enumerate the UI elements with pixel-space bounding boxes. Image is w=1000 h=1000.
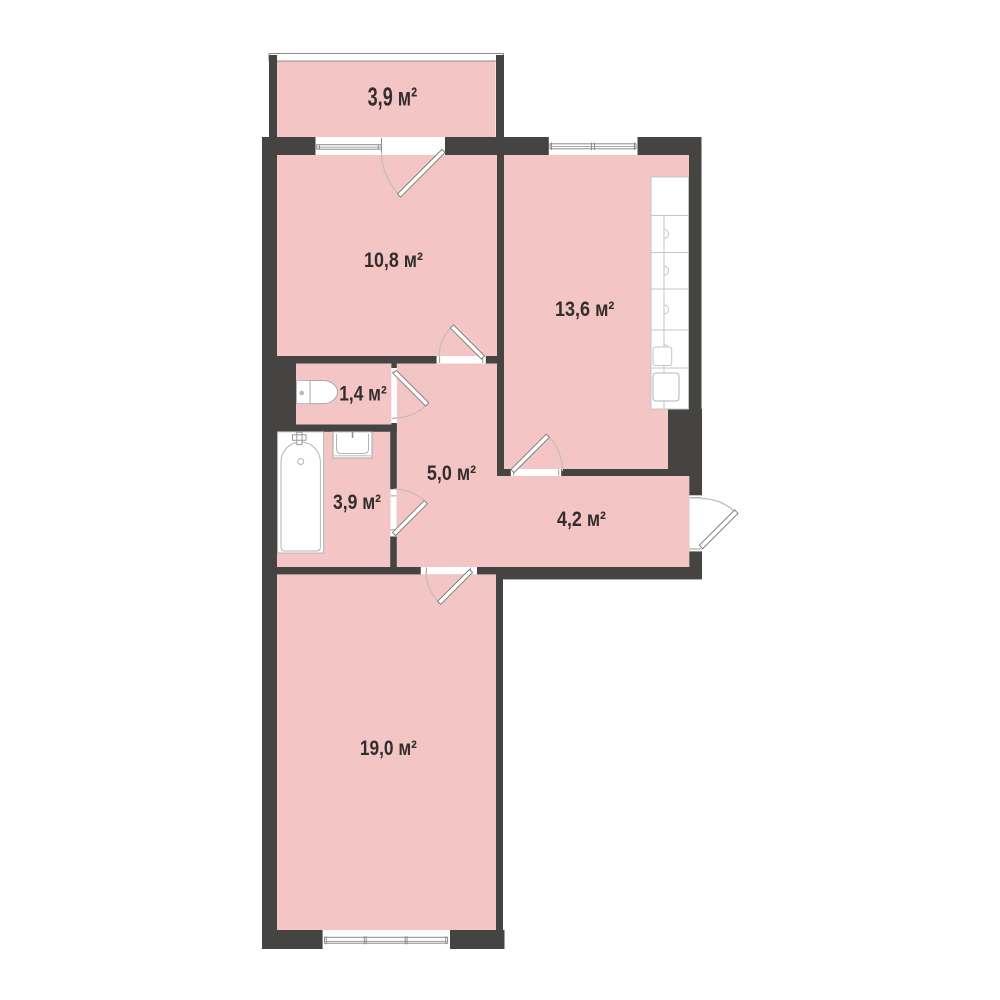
svg-text:3,9 м²: 3,9 м² xyxy=(333,491,381,514)
svg-text:5,0 м²: 5,0 м² xyxy=(427,462,476,485)
svg-text:4,2 м²: 4,2 м² xyxy=(557,508,606,531)
svg-text:1,4 м²: 1,4 м² xyxy=(339,383,387,406)
svg-text:10,8 м²: 10,8 м² xyxy=(364,249,423,272)
svg-text:13,6 м²: 13,6 м² xyxy=(555,298,615,321)
svg-text:3,9 м²: 3,9 м² xyxy=(368,82,418,112)
svg-text:19,0 м²: 19,0 м² xyxy=(360,737,417,760)
